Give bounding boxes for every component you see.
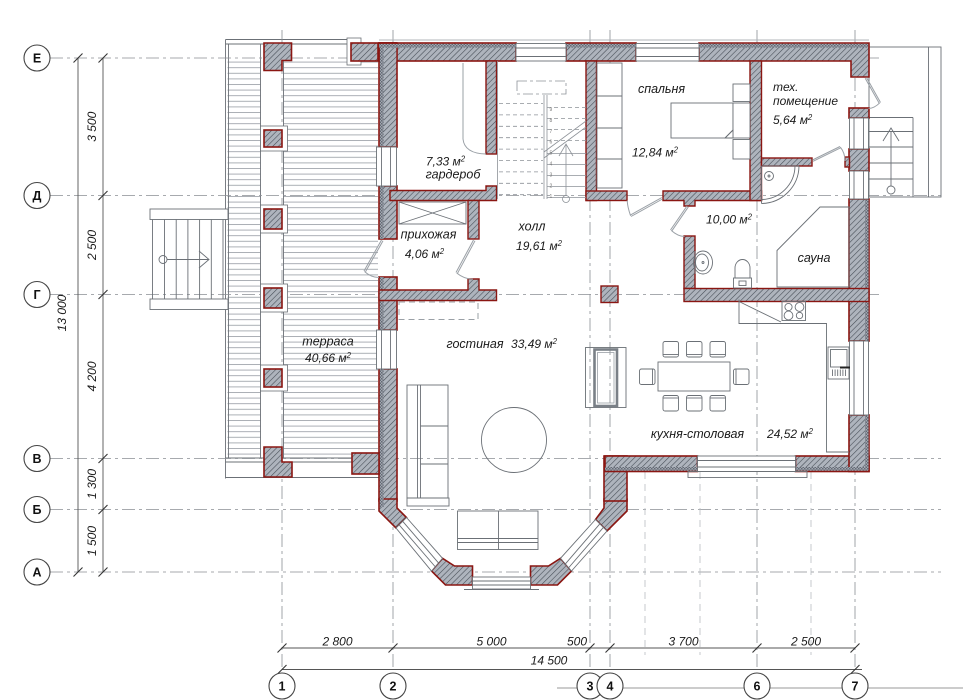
svg-text:терраса: терраса	[302, 335, 353, 349]
svg-text:Б: Б	[33, 503, 42, 517]
svg-text:5,64 м2: 5,64 м2	[773, 113, 813, 127]
svg-text:помещение: помещение	[773, 94, 838, 108]
svg-text:2 500: 2 500	[85, 230, 99, 261]
svg-text:12,84 м2: 12,84 м2	[632, 146, 679, 160]
svg-text:4: 4	[550, 162, 553, 168]
svg-text:2: 2	[390, 680, 397, 694]
svg-text:3 700: 3 700	[668, 635, 698, 649]
svg-text:8: 8	[550, 118, 553, 124]
svg-text:40,66 м2: 40,66 м2	[305, 351, 352, 365]
svg-text:4 200: 4 200	[85, 361, 99, 391]
svg-text:4: 4	[607, 680, 614, 694]
svg-text:10,00 м2: 10,00 м2	[706, 213, 753, 227]
svg-text:1 500: 1 500	[85, 526, 99, 556]
svg-text:7,33 м2: 7,33 м2	[426, 155, 466, 169]
svg-text:1: 1	[550, 194, 553, 200]
svg-text:4,06 м2: 4,06 м2	[405, 247, 445, 261]
svg-text:гостиная: гостиная	[446, 337, 503, 351]
svg-text:2: 2	[550, 183, 553, 189]
svg-text:5: 5	[550, 151, 553, 157]
svg-text:9: 9	[550, 107, 553, 113]
svg-text:7: 7	[550, 129, 553, 135]
svg-text:13 000: 13 000	[55, 294, 69, 331]
svg-text:24,52 м2: 24,52 м2	[766, 427, 814, 441]
svg-text:1 300: 1 300	[85, 469, 99, 499]
svg-text:кухня-столовая: кухня-столовая	[651, 427, 745, 441]
svg-text:В: В	[32, 452, 41, 466]
svg-text:3: 3	[550, 172, 553, 178]
svg-text:спальня: спальня	[638, 82, 685, 96]
svg-text:холл: холл	[518, 220, 546, 234]
svg-text:прихожая: прихожая	[401, 228, 457, 242]
svg-text:Е: Е	[33, 52, 41, 66]
svg-text:Д: Д	[33, 189, 42, 203]
svg-text:33,49 м2: 33,49 м2	[511, 337, 558, 351]
svg-text:19,61 м2: 19,61 м2	[516, 239, 563, 253]
svg-text:3: 3	[587, 680, 594, 694]
svg-text:6: 6	[550, 140, 553, 146]
svg-text:6: 6	[754, 680, 761, 694]
svg-text:А: А	[32, 566, 41, 580]
svg-text:тех.: тех.	[773, 80, 798, 94]
svg-text:2 800: 2 800	[321, 635, 352, 649]
svg-text:7: 7	[852, 680, 859, 694]
svg-text:1: 1	[279, 680, 286, 694]
svg-text:гардероб: гардероб	[426, 168, 482, 182]
svg-text:5 000: 5 000	[476, 635, 506, 649]
svg-text:500: 500	[567, 635, 587, 649]
svg-text:Г: Г	[33, 288, 40, 302]
svg-text:3 500: 3 500	[85, 111, 99, 141]
svg-text:2 500: 2 500	[790, 635, 821, 649]
svg-text:сауна: сауна	[798, 251, 831, 265]
svg-text:14 500: 14 500	[531, 654, 568, 668]
